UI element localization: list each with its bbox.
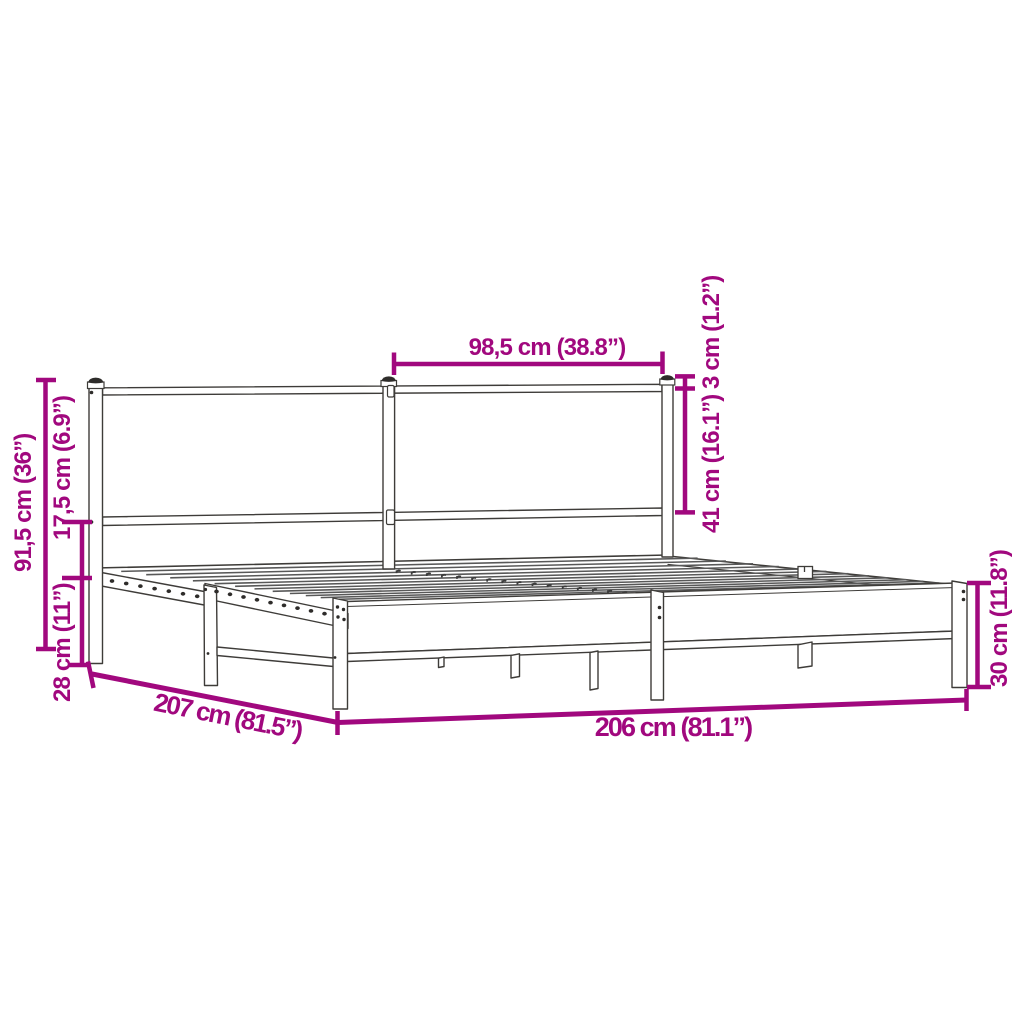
svg-text:30 cm (11.8”): 30 cm (11.8”) (986, 550, 1013, 687)
svg-text:207 cm (81.5”): 207 cm (81.5”) (151, 687, 305, 746)
svg-text:28 cm (11”): 28 cm (11”) (49, 583, 76, 702)
svg-text:206 cm (81.1”): 206 cm (81.1”) (595, 712, 752, 742)
svg-text:91,5 cm (36”): 91,5 cm (36”) (10, 434, 37, 572)
svg-text:41 cm (16.1”): 41 cm (16.1”) (698, 395, 725, 533)
svg-text:98,5 cm (38.8”): 98,5 cm (38.8”) (469, 334, 626, 361)
svg-text:17,5 cm (6.9”): 17,5 cm (6.9”) (49, 396, 76, 540)
svg-text:3 cm (1.2”): 3 cm (1.2”) (698, 276, 725, 389)
